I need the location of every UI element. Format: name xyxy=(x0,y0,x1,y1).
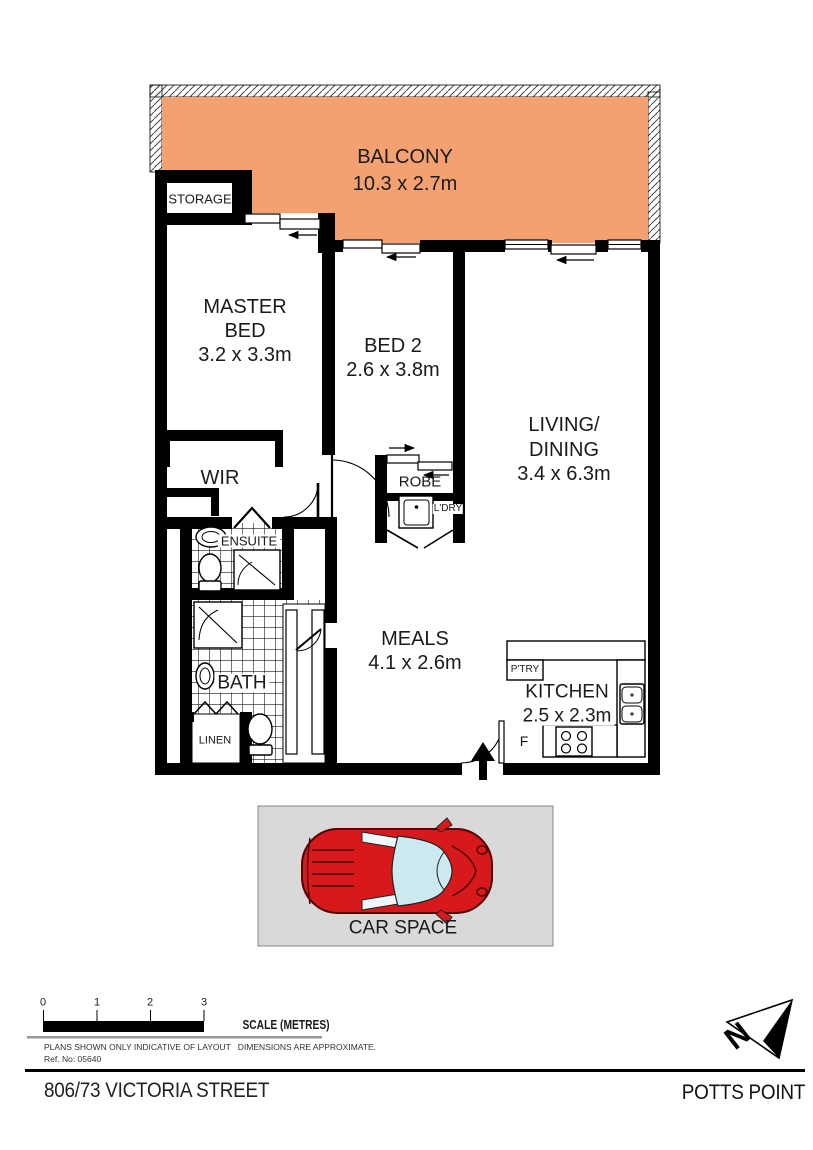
bifold-door xyxy=(387,530,453,548)
bath-label: BATH xyxy=(214,674,269,693)
balcony-dims: 10.3 x 2.7m xyxy=(353,174,458,194)
entry-arrow-icon xyxy=(471,742,495,780)
bed2-sliding-door xyxy=(382,244,420,253)
scale-tick-3: 3 xyxy=(201,998,207,1009)
floorplan-page: N BALCONY 10.3 x 2.7m STORAGE MASTER BED… xyxy=(0,0,813,1150)
meals-label: MEALS xyxy=(381,629,449,649)
disclaimer-text: PLANS SHOWN ONLY INDICATIVE OF LAYOUT DI… xyxy=(44,1043,376,1052)
property-address: 806/73 VICTORIA STREET xyxy=(44,1080,269,1102)
bed2-dims: 2.6 x 3.8m xyxy=(346,360,439,380)
scale-tick-0: 0 xyxy=(40,998,46,1009)
living-dining-label: DINING xyxy=(529,440,599,460)
balcony-label: BALCONY xyxy=(357,147,453,167)
car-icon xyxy=(302,818,492,924)
kitchen-dims: 2.5 x 2.3m xyxy=(520,707,615,726)
cupboard-door-panel xyxy=(286,610,297,754)
scale-label: SCALE (METRES) xyxy=(242,1019,329,1032)
kitchen-label: KITCHEN xyxy=(522,683,611,702)
master-door xyxy=(284,483,318,517)
robe-sliding-door xyxy=(418,462,452,470)
master-bed-dims: 3.2 x 3.3m xyxy=(198,345,291,365)
pantry-label: P'TRY xyxy=(511,665,539,675)
bed2-sliding-door xyxy=(343,240,382,248)
robe-label: ROBE xyxy=(399,475,442,490)
laundry-label: L'DRY xyxy=(433,504,463,514)
wir-label: WIR xyxy=(201,468,240,488)
property-suburb: POTTS POINT xyxy=(682,1080,805,1105)
cooktop-icon xyxy=(556,727,592,756)
living-dining-dims: 3.4 x 6.3m xyxy=(517,464,610,484)
scale-tick-2: 2 xyxy=(147,998,153,1009)
ensuite-label: ENSUITE xyxy=(218,535,280,548)
toilet-icon xyxy=(199,554,221,582)
linen-label: LINEN xyxy=(199,736,231,747)
bed2-label: BED 2 xyxy=(364,336,422,356)
reference-number: Ref. No: 05640 xyxy=(44,1055,101,1064)
master-sliding-door xyxy=(245,214,280,223)
toilet-icon xyxy=(248,714,272,744)
robe-sliding-door xyxy=(387,455,419,463)
scale-underline xyxy=(27,1036,322,1039)
living-sliding-door xyxy=(551,245,596,254)
scale-tick-1: 1 xyxy=(94,998,100,1009)
master-bed-label: MASTER xyxy=(203,297,286,317)
kitchen-counter xyxy=(507,641,645,660)
storage-label: STORAGE xyxy=(168,193,231,206)
footer-divider xyxy=(25,1069,805,1072)
fridge-label: F xyxy=(520,734,529,748)
north-arrow-icon: N xyxy=(718,1000,792,1058)
car-space-label: CAR SPACE xyxy=(349,919,457,938)
master-bed-label: BED xyxy=(224,321,265,341)
master-sliding-door xyxy=(280,219,320,229)
living-dining-label: LIVING/ xyxy=(528,415,599,435)
meals-dims: 4.1 x 2.6m xyxy=(368,653,461,673)
